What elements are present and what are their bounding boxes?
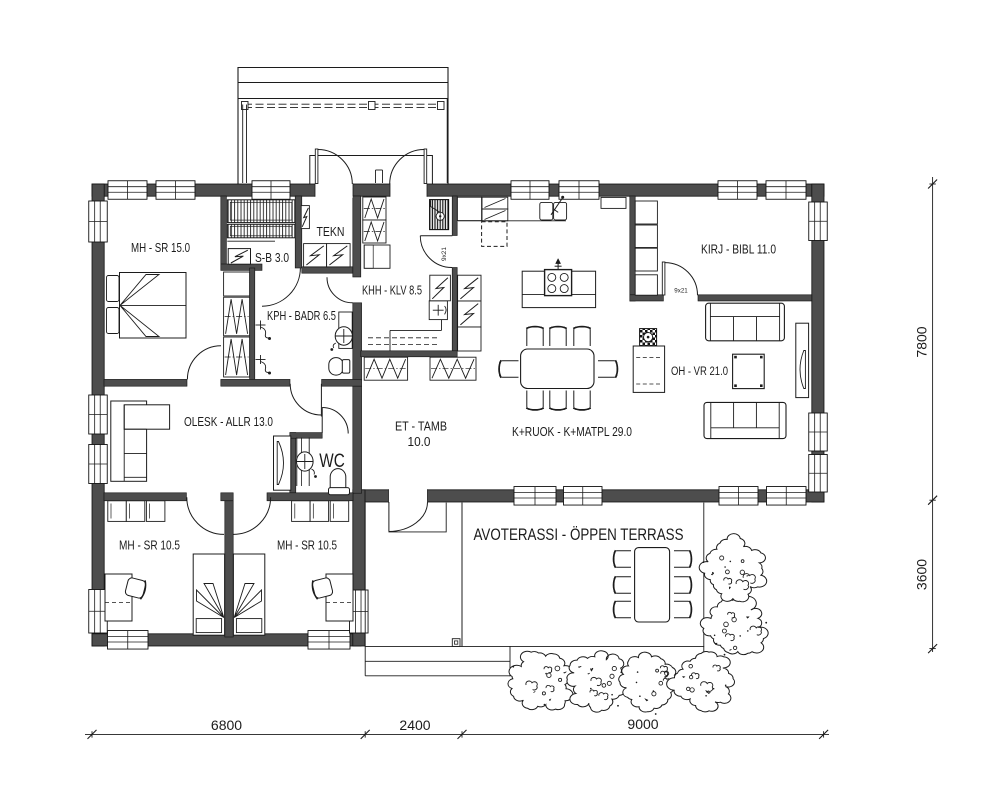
svg-text:AVOTERASSI - ÖPPEN TERRASS: AVOTERASSI - ÖPPEN TERRASS [474,525,684,544]
svg-text:ET - TAMB: ET - TAMB [395,419,447,434]
svg-text:MH - SR 10.5: MH - SR 10.5 [277,538,337,553]
svg-text:WC: WC [319,451,345,472]
svg-text:6800: 6800 [211,717,242,733]
svg-text:10.0: 10.0 [408,434,431,449]
svg-text:S-B 3.0: S-B 3.0 [255,250,289,265]
svg-text:2400: 2400 [399,717,430,733]
svg-text:MH - SR 10.5: MH - SR 10.5 [119,538,180,553]
svg-text:OH - VR 21.0: OH - VR 21.0 [671,366,728,378]
svg-text:9000: 9000 [627,716,658,732]
svg-text:9x21: 9x21 [674,288,688,295]
svg-text:KHH - KLV 8.5: KHH - KLV 8.5 [362,283,422,298]
svg-text:KPH - BADR 6.5: KPH - BADR 6.5 [267,308,336,323]
svg-text:OLESK - ALLR 13.0: OLESK - ALLR 13.0 [184,414,273,429]
svg-text:3600: 3600 [914,559,930,590]
svg-text:TEKN: TEKN [317,224,345,239]
svg-text:KIRJ - BIBL 11.0: KIRJ - BIBL 11.0 [701,242,776,257]
svg-text:7800: 7800 [914,326,930,357]
svg-text:MH - SR 15.0: MH - SR 15.0 [131,240,190,255]
svg-text:K+RUOK - K+MATPL 29.0: K+RUOK - K+MATPL 29.0 [512,425,632,439]
svg-text:9x21: 9x21 [441,247,448,261]
